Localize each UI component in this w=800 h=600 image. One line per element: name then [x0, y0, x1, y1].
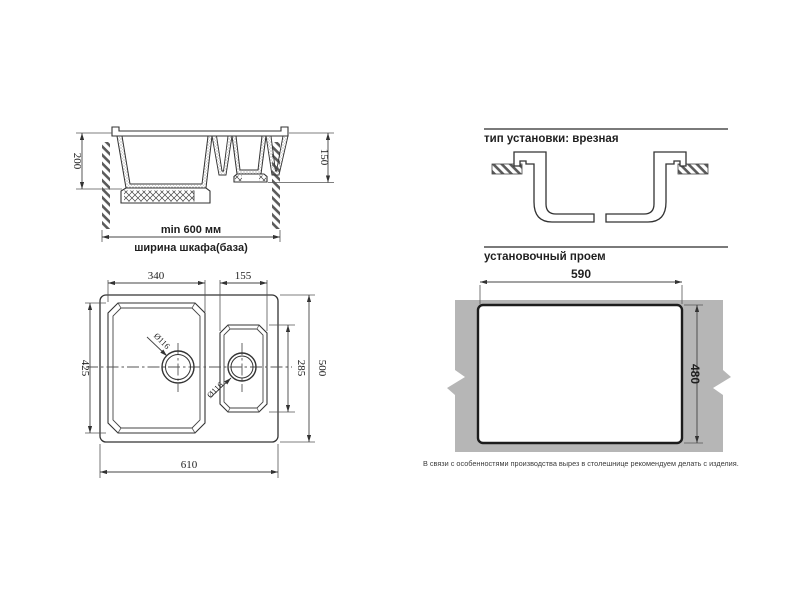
install-type-section: тип установки: врезная — [484, 129, 728, 222]
sink-edge-profile-left — [514, 152, 594, 222]
front-view: 200 150 min 600 мм ширина шкафа(база) — [71, 127, 334, 254]
dim-cutout-height: 480 — [688, 364, 702, 384]
small-drain-hatch-left — [235, 176, 242, 182]
dim-cutout-width: 590 — [571, 267, 591, 281]
cutout-opening — [478, 305, 682, 443]
cutout-title: установочный проем — [484, 251, 606, 263]
cabinet-wall-left — [102, 142, 110, 229]
cabinet-width-label: ширина шкафа(база) — [134, 242, 248, 254]
dim-min-cabinet-width: min 600 мм — [161, 224, 221, 236]
drawing-canvas: 200 150 min 600 мм ширина шкафа(база) ти… — [0, 0, 800, 600]
bowl-divider-section — [212, 136, 232, 175]
dim-main-bowl-length: 425 — [79, 360, 91, 377]
sink-installation-drawing: 200 150 min 600 мм ширина шкафа(база) ти… — [0, 0, 800, 600]
dim-small-bowl-length: 285 — [295, 360, 307, 377]
dim-depth-small: 150 — [318, 149, 330, 166]
dim-main-bowl-width: 340 — [148, 270, 165, 282]
dim-overall-length: 500 — [316, 360, 328, 377]
sink-edge-profile-right — [606, 152, 686, 222]
small-drain-hatch-right — [259, 176, 266, 182]
cutout-section: установочный проем 590 480 В связи с осо… — [423, 247, 739, 468]
small-bowl-rim-outer — [220, 325, 267, 412]
main-bowl-drain-hatch — [124, 191, 194, 202]
dim-overall-width: 610 — [181, 459, 198, 471]
main-bowl-section — [117, 136, 212, 188]
dim-depth-main: 200 — [71, 153, 83, 170]
top-view: Ø116 Ø116 340 155 425 285 500 610 — [79, 270, 328, 478]
sink-rim-profile — [112, 127, 288, 136]
production-note: В связи с особенностями производства выр… — [423, 459, 739, 468]
install-type-title: тип установки: врезная — [484, 133, 619, 145]
dim-small-bowl-width: 155 — [235, 270, 252, 282]
small-bowl-section — [232, 136, 266, 174]
